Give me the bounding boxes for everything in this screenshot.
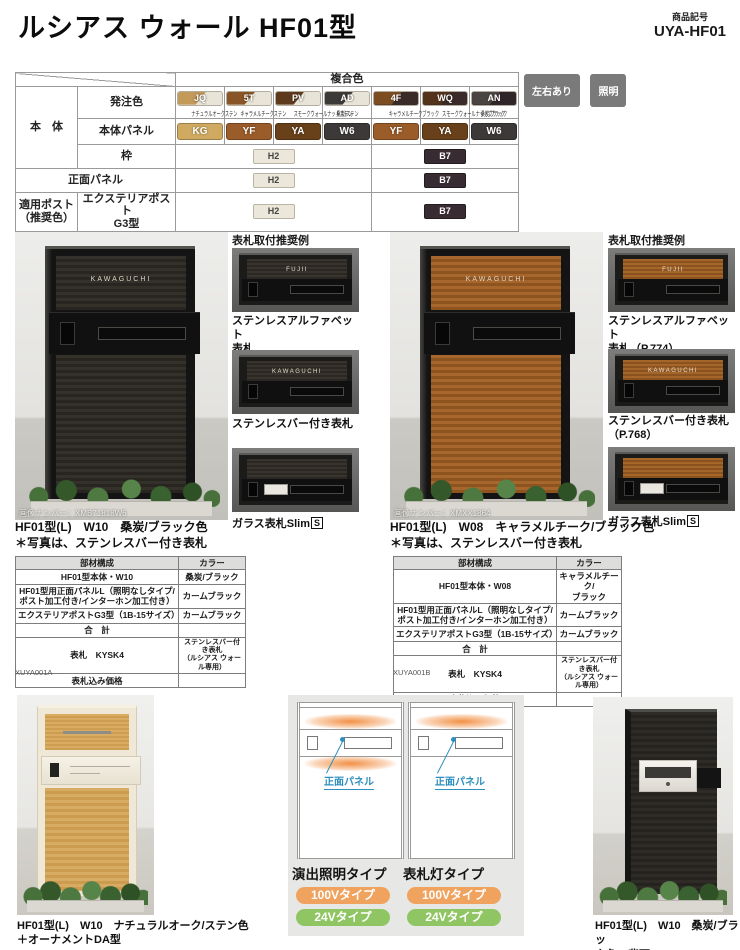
color-cell: [179, 674, 246, 688]
nameplate: KAWAGUCHI: [247, 369, 347, 375]
wood-panel-top: KAWAGUCHI: [56, 256, 186, 310]
color-swatch: WQ: [422, 91, 468, 106]
mail-slot: [666, 484, 720, 493]
wall-front-dark: KAWAGUCHI: [45, 246, 195, 499]
wood-panel-top: [45, 714, 129, 750]
slim-s-mark: S: [311, 517, 323, 529]
voltage-badge-24v: 24Vタイプ: [407, 909, 501, 926]
light-glow: [305, 756, 396, 771]
part-cell: HF01型用正面パネルL（照明なしタイプ/ ポスト加工付き/インターホン加工付き…: [16, 585, 179, 608]
product-caption-right: HF01型(L) W08 キャラメルチーク/ブラック色 ＊写真は、ステンレスバー…: [390, 520, 654, 551]
color-swatch: 4F: [373, 91, 419, 106]
color-label: ナチュラルオークステン: [176, 107, 224, 116]
voltage-badge-100v: 100Vタイプ: [296, 887, 390, 904]
wood-panel-body: [431, 355, 561, 493]
nameplate: FUJII: [247, 267, 347, 273]
intercom: [50, 763, 59, 777]
part-cell: 合 計: [16, 623, 179, 637]
mail-slot: [290, 485, 344, 494]
h2-chip: H2: [253, 149, 295, 164]
lighting-diagram-panel: 正面パネル 正面パネル 演出照明タイプ 表札灯タイプ 100Vタイプ 24Vタイ…: [288, 695, 524, 936]
row-header-front-panel: 正面パネル: [16, 168, 176, 192]
intercom: [435, 322, 450, 345]
base-slab: [603, 900, 723, 912]
intercom: [248, 384, 258, 399]
front-panel-label: 正面パネル: [324, 773, 374, 790]
color-swatch: AN: [471, 91, 517, 106]
example-caption: ガラス表札SlimS: [232, 517, 323, 532]
example-caption: ステンレスバー付き表札 （P.768）: [608, 415, 729, 443]
lighting-option-button[interactable]: 照明: [590, 74, 626, 107]
wood-panel-body: [45, 788, 129, 891]
product-code: UYA-HF01: [654, 23, 726, 42]
intercom: [248, 282, 258, 297]
wood-panel-body: [56, 355, 186, 493]
light-glow: [416, 714, 507, 729]
product-caption-left: HF01型(L) W10 桑炭/ブラック色 ＊写真は、ステンレスバー付き表札: [15, 520, 208, 551]
product-photo-left: KAWAGUCHI 画像ナンバー：XMB71818W6: [15, 232, 228, 520]
post-name: エクステリアポスト G3型: [78, 192, 176, 231]
nameplate: [63, 731, 110, 734]
panel-color-chip: KG: [177, 123, 223, 140]
base-slab: [27, 900, 144, 912]
doc-code-left: XUYA001A: [15, 668, 52, 677]
b7-chip: B7: [424, 204, 466, 219]
color-swatch: PV: [275, 91, 321, 106]
product-photo-bottom-left: [17, 695, 154, 915]
mail-slot: [455, 737, 503, 749]
caption-bottom-right: HF01型(L) W10 桑炭/ブラッ ク色 背面: [595, 919, 740, 950]
post-knob: [666, 782, 670, 786]
h2-chip: H2: [253, 204, 295, 219]
color-cell: 桑炭/ブラック: [179, 570, 246, 585]
row-header-body-panel: 本体パネル: [78, 118, 176, 144]
mail-slot: [98, 327, 186, 340]
part-cell: 合 計: [394, 642, 557, 656]
diagram-caption: 表札灯タイプ: [403, 863, 513, 883]
mail-slot: [666, 386, 720, 395]
color-label: キャラメルチークブラック: [372, 107, 420, 116]
nameplate-example-photo: [232, 448, 359, 512]
diagram-nameplate-light: 正面パネル: [408, 702, 515, 859]
color-cell: カームブラック: [179, 585, 246, 608]
mail-slot: [344, 737, 392, 749]
post-opening: [645, 767, 691, 778]
catalog-page: ルシアス ウォール HF01型 商品記号 UYA-HF01 複合色 本 体 発注…: [0, 0, 740, 950]
nameplate-recommend-left: 表札取付推奨例 FUJII ステンレスアルファベット 表札 KAWAGUCHI …: [232, 232, 362, 248]
panel-color-chip: YA: [422, 123, 468, 140]
product-photo-right: KAWAGUCHI 画像ナンバー：XMXX1864: [390, 232, 603, 520]
wall-oak: [37, 705, 137, 897]
nameplate: KAWAGUCHI: [431, 276, 561, 283]
panel-color-chip: YF: [226, 123, 272, 140]
intercom: [624, 481, 634, 496]
mail-slot: [290, 387, 344, 396]
part-cell: エクステリアポストG3型（1B-15サイズ）: [394, 627, 557, 642]
caption-bottom-left: HF01型(L) W10 ナチュラルオーク/ステン色 ＋オーナメントDA型: [17, 919, 249, 948]
mail-slot: [666, 285, 720, 294]
example-caption: ステンレスバー付き表札: [232, 418, 353, 432]
mail-slot: [290, 285, 344, 294]
color-cell: カームブラック: [557, 603, 622, 626]
front-panel-band: [41, 756, 141, 785]
nameplate-example-photo: [608, 447, 735, 511]
color-cell: ステンレスバー付き表札 （ルシアス ウォール専用）: [557, 656, 622, 693]
nameplate: KAWAGUCHI: [56, 276, 186, 283]
post-box-rear: [639, 760, 697, 792]
table-corner-cell: [16, 73, 176, 87]
color-spec-table: 複合色 本 体 発注色 JQ ナチュラルオークステン 5T キャラメルチークステ…: [15, 72, 519, 232]
part-cell: HF01型本体・W10: [16, 570, 179, 585]
color-cell: カームブラック: [557, 627, 622, 642]
nameplate-recommend-right: 表札取付推奨例 FUJII ステンレスアルファベット 表札（P.774） KAW…: [608, 232, 738, 248]
wall-rear-dark: [625, 709, 717, 894]
recommend-heading: 表札取付推奨例: [608, 232, 738, 248]
intercom: [624, 282, 634, 297]
intercom: [418, 736, 429, 750]
b7-chip: B7: [424, 173, 466, 188]
doc-code-right: XUYA001B: [393, 668, 430, 677]
intercom: [60, 322, 75, 345]
part-cell: HF01型用正面パネルL（照明なしタイプ/ ポスト加工付き/インターホン加工付き…: [394, 603, 557, 626]
wall-front-teak: KAWAGUCHI: [420, 246, 570, 499]
order-color-4f: 4F キャラメルチークブラック: [372, 86, 421, 118]
panel-color-chip: YA: [275, 123, 321, 140]
page-title: ルシアス ウォール HF01型: [18, 6, 357, 45]
intercom: [624, 383, 634, 398]
intercom: [248, 482, 258, 497]
glass-nameplate: [264, 484, 288, 495]
color-swatch: AD: [324, 91, 370, 106]
voltage-badge-24v: 24Vタイプ: [296, 909, 390, 926]
recommend-heading: 表札取付推奨例: [232, 232, 362, 248]
panel-color-chip: W6: [471, 123, 517, 140]
b7-chip: B7: [424, 149, 466, 164]
part-cell: HF01型本体・W08: [394, 570, 557, 604]
intercom: [307, 736, 318, 750]
front-panel-label: 正面パネル: [435, 773, 485, 790]
color-cell: ステンレスバー付き表札 （ルシアス ウォール専用）: [179, 637, 246, 674]
front-panel-band: [424, 312, 575, 354]
color-cell: [179, 623, 246, 637]
diagram-accent-lighting: 正面パネル: [297, 702, 404, 859]
row-header-body: 本 体: [16, 86, 78, 168]
color-swatch: 5T: [226, 91, 272, 106]
parts-table-right: 部材構成カラー HF01型本体・W08キャラメルチーク/ ブラック HF01型用…: [393, 556, 622, 707]
nameplate: FUJII: [623, 267, 723, 273]
left-right-option-button[interactable]: 左右あり: [524, 74, 580, 107]
wood-panel-top: KAWAGUCHI: [431, 256, 561, 310]
part-cell: エクステリアポストG3型（1B-15サイズ）: [16, 608, 179, 623]
nameplate-example-photo: KAWAGUCHI: [608, 349, 735, 413]
color-swatch: JQ: [177, 91, 223, 106]
feature-buttons: 左右あり 照明: [524, 74, 632, 107]
glass-nameplate: [640, 483, 664, 494]
nameplate: KAWAGUCHI: [623, 368, 723, 374]
product-code-block: 商品記号 UYA-HF01: [654, 12, 726, 42]
product-photo-bottom-right: [593, 697, 733, 915]
image-number: 画像ナンバー：XMB71818W6: [19, 508, 127, 519]
mail-slot: [473, 327, 561, 340]
nameplate-example-photo: KAWAGUCHI: [232, 350, 359, 414]
slim-s-mark: S: [687, 515, 699, 527]
front-panel-band: [49, 312, 200, 354]
group-header-cell: 複合色: [176, 73, 519, 87]
color-cell: カームブラック: [179, 608, 246, 623]
nameplate-example-photo: FUJII: [232, 248, 359, 312]
image-number: 画像ナンバー：XMXX1864: [394, 508, 490, 519]
product-code-label: 商品記号: [654, 12, 726, 23]
row-header-order-color: 発注色: [78, 86, 176, 118]
mail-slot: [70, 766, 130, 767]
row-header-post: 適用ポスト （推奨色）: [16, 192, 78, 231]
row-header-frame: 枠: [78, 144, 176, 168]
voltage-badge-100v: 100Vタイプ: [407, 887, 501, 904]
order-color-jq: JQ ナチュラルオークステン: [176, 86, 225, 118]
nameplate-example-photo: FUJII: [608, 248, 735, 312]
diagram-caption: 演出照明タイプ: [292, 863, 402, 883]
color-cell: キャラメルチーク/ ブラック: [557, 570, 622, 604]
panel-color-chip: YF: [373, 123, 419, 140]
h2-chip: H2: [253, 173, 295, 188]
color-cell: [557, 642, 622, 656]
panel-color-chip: W6: [324, 123, 370, 140]
light-glow: [305, 714, 396, 729]
